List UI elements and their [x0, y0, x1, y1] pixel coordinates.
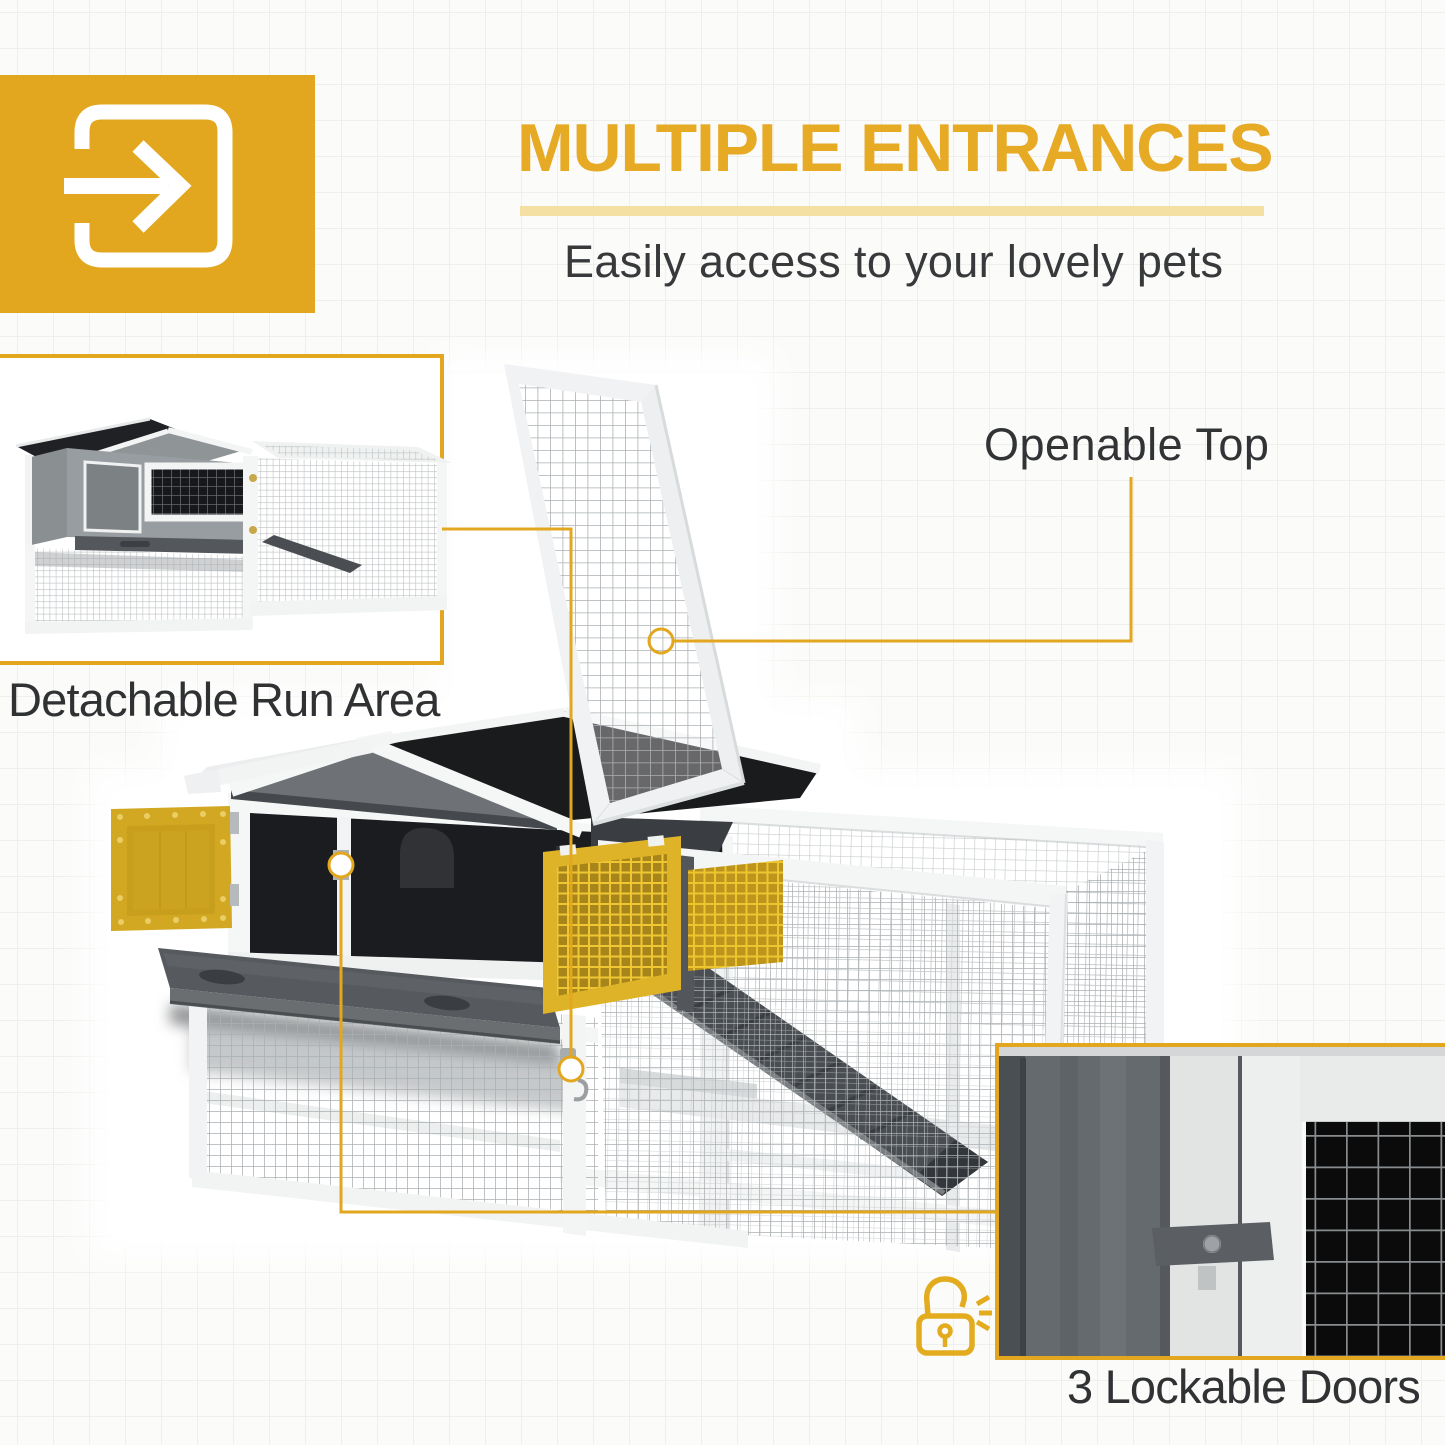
- svg-text:Openable Top: Openable Top: [984, 419, 1269, 470]
- svg-text:Detachable Run Area: Detachable Run Area: [8, 673, 441, 726]
- svg-text:MULTIPLE ENTRANCES: MULTIPLE ENTRANCES: [517, 110, 1272, 186]
- svg-text:Easily access to your lovely p: Easily access to your lovely pets: [564, 236, 1223, 287]
- svg-text:3 Lockable Doors: 3 Lockable Doors: [1067, 1360, 1420, 1413]
